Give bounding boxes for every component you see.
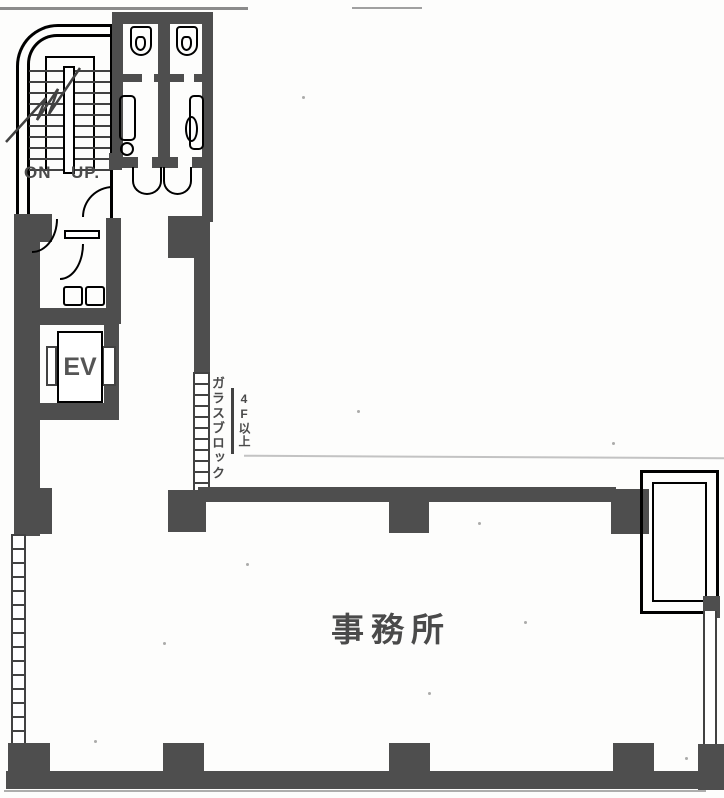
- elevator-door-rail: [46, 346, 57, 386]
- scan-artifact-line: [0, 7, 248, 10]
- wall-segment: [194, 74, 208, 82]
- note-bracket-line: [231, 388, 234, 454]
- pier-block: [389, 743, 430, 789]
- stair-break-line-path: [6, 68, 80, 142]
- wall-segment: [192, 157, 210, 168]
- noise-dot: [428, 692, 431, 695]
- kitchen-shelf: [64, 230, 100, 239]
- toilet-door-arc: [132, 167, 162, 195]
- sink-counter-icon: [85, 286, 105, 306]
- stair-label-up: UP.: [71, 163, 100, 183]
- elevator-door-rail: [102, 346, 116, 386]
- elevator-top-wall: [14, 308, 118, 325]
- scan-artifact-line: [352, 7, 422, 9]
- toilet-door-arc: [163, 167, 192, 195]
- corridor-wall: [194, 220, 210, 374]
- pier-block: [8, 743, 50, 789]
- sink-counter-icon: [63, 286, 83, 306]
- elevator-car: EV: [57, 331, 103, 403]
- pier-block: [389, 497, 429, 533]
- noise-dot: [478, 522, 481, 525]
- core-right-wall: [109, 153, 122, 170]
- toilet-icon: [119, 95, 136, 141]
- urinal-icon: [176, 26, 198, 56]
- pier-block: [163, 743, 204, 789]
- noise-dot: [163, 642, 166, 645]
- office-label: 事務所: [331, 603, 451, 651]
- noise-dot: [246, 563, 249, 566]
- left-window-strip: [11, 534, 26, 746]
- urinal-bowl: [135, 36, 146, 51]
- noise-dot: [612, 442, 615, 445]
- noise-dot: [685, 757, 688, 760]
- stair-break-line: [2, 58, 94, 148]
- glass-block-note: 4F以上: [236, 392, 253, 462]
- faint-sight-line: [244, 455, 724, 460]
- pier-block: [613, 743, 654, 789]
- bay-window-inner: [652, 482, 707, 602]
- stair-label-on: ON: [24, 163, 52, 183]
- glass-block-label: ガラスブロック: [208, 376, 227, 488]
- kitchen-door-arc: [32, 219, 58, 253]
- urinal-bowl: [181, 36, 192, 51]
- wall-segment: [116, 74, 142, 82]
- scan-artifact-line: [4, 790, 706, 792]
- right-window-strip: [703, 611, 717, 747]
- urinal-icon: [130, 26, 152, 56]
- noise-dot: [94, 740, 97, 743]
- floorplan-canvas: ON UP. EV ガラスブロック 4F以: [0, 0, 724, 798]
- kitchen-door-leaf: [60, 244, 84, 280]
- pier-block: [14, 488, 52, 534]
- noise-dot: [357, 410, 360, 413]
- toilet-icon: [120, 142, 134, 156]
- toilet-middle-wall: [158, 12, 170, 168]
- noise-dot: [302, 96, 305, 99]
- wall-segment: [154, 74, 184, 82]
- noise-dot: [524, 621, 527, 624]
- toilet-icon: [185, 116, 198, 142]
- elevator-bottom-wall: [14, 403, 118, 420]
- elevator-label: EV: [63, 353, 96, 382]
